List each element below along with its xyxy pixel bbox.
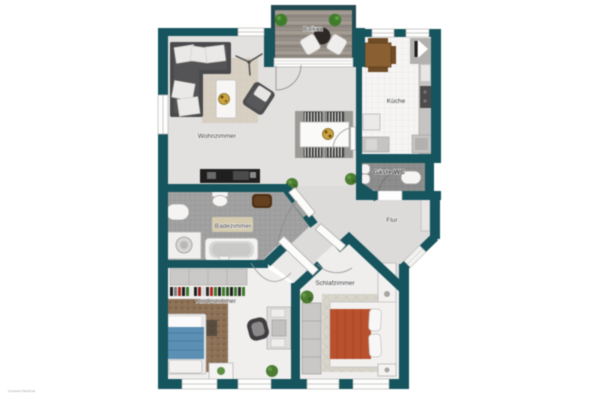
svg-text:Wohnzimmer: Wohnzimmer (198, 133, 237, 140)
svg-text:Gäste WC: Gäste WC (373, 169, 405, 176)
svg-text:Küche: Küche (387, 98, 406, 105)
svg-text:Grundriss Plan24.de: Grundriss Plan24.de (8, 389, 36, 393)
svg-text:Balkon: Balkon (303, 26, 323, 33)
svg-text:Kinderzimmer: Kinderzimmer (196, 298, 237, 305)
svg-text:Flur: Flur (386, 217, 398, 224)
svg-text:Badezimmer: Badezimmer (215, 223, 252, 230)
svg-text:Schlafzimmer: Schlafzimmer (315, 280, 355, 287)
